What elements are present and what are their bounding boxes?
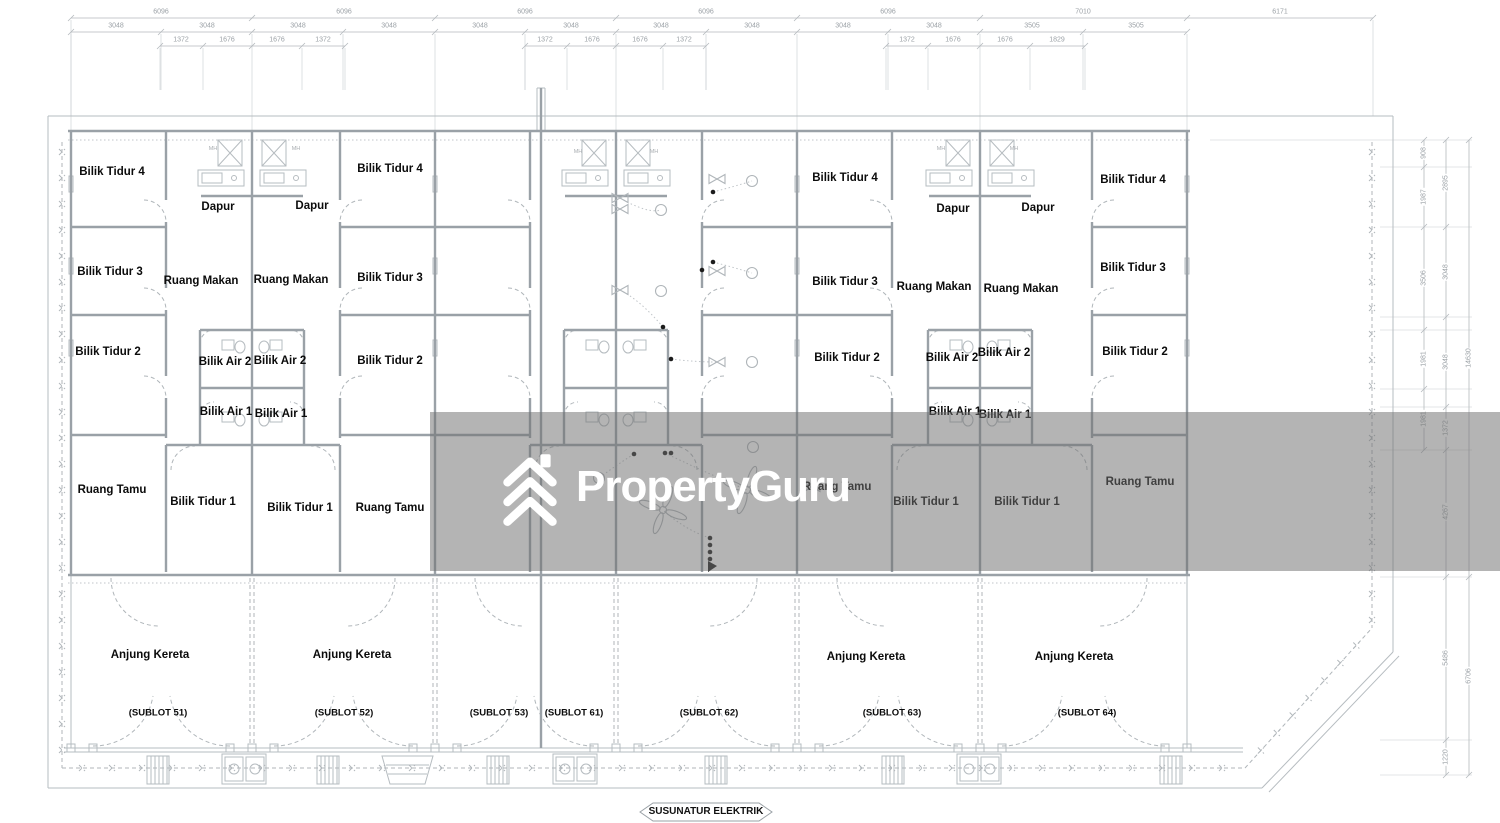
propertyguru-wordmark: PropertyGuru [576,462,850,512]
propertyguru-logo: PropertyGuru [500,448,850,526]
drawing-title: SUSUNATUR ELEKTRIK [636,800,776,823]
propertyguru-watermark: PropertyGuru [430,412,1500,571]
electrical-layout-floor-plan: Bilik Tidur 4DapurDapurBilik Tidur 4Bili… [0,0,1500,823]
propertyguru-logo-icon [500,448,560,526]
drawing-title-text: SUSUNATUR ELEKTRIK [636,806,776,817]
